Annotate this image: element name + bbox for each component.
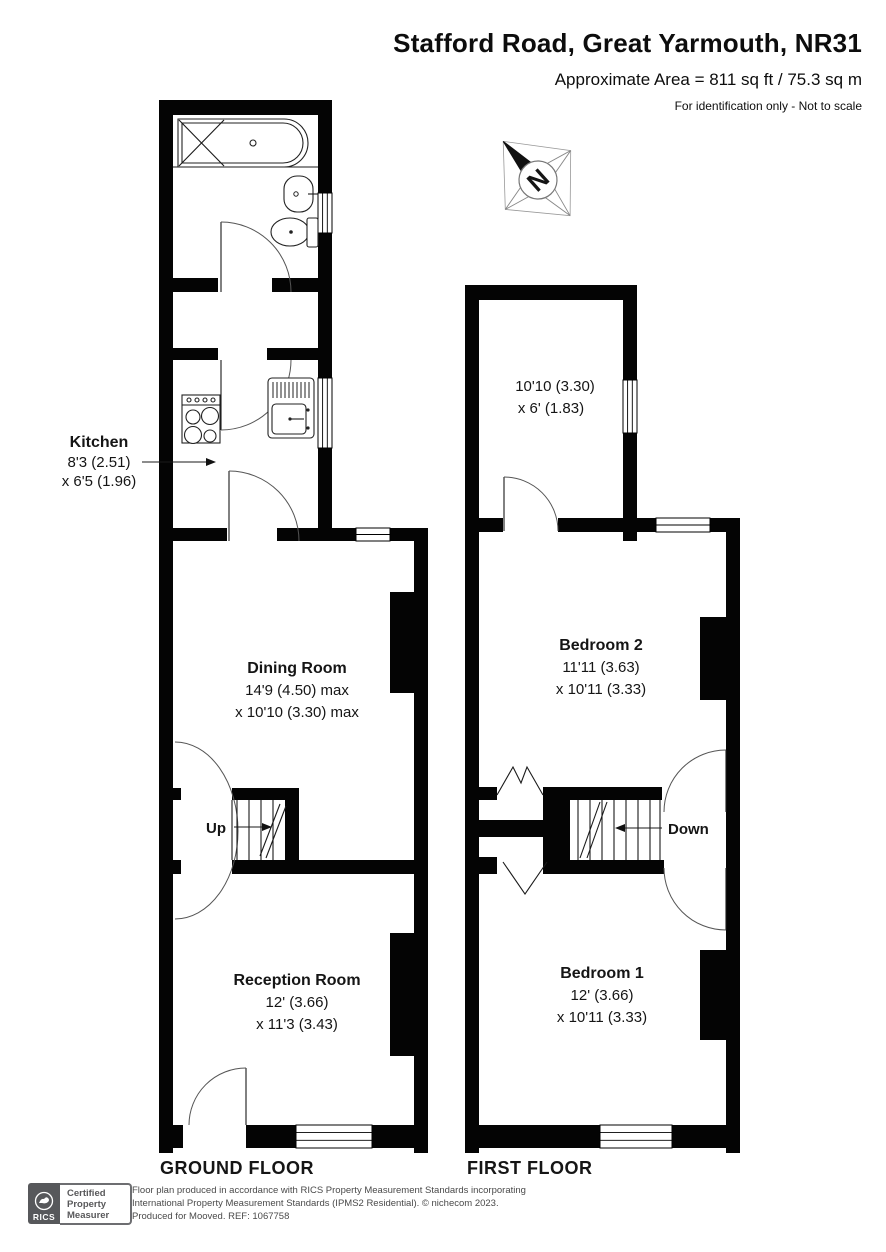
ground-floor-label: GROUND FLOOR — [160, 1158, 314, 1178]
dining-room-label: Dining Room — [247, 660, 347, 677]
bedroom1-dim1: 12' (3.66) — [571, 987, 634, 1004]
stairs-first — [578, 800, 662, 860]
reception-front-window — [296, 1125, 372, 1148]
toilet-icon — [271, 218, 318, 247]
bedroom2-door-arc — [664, 750, 726, 812]
top-room-door-arc — [504, 477, 558, 531]
bedroom2-window — [656, 518, 710, 532]
stairs-ground — [232, 800, 286, 860]
certification-badge: RICS Certified Property Measurer — [28, 1183, 132, 1225]
disclaimer-line-1: Floor plan produced in accordance with R… — [132, 1184, 526, 1197]
certified-property-measurer-badge: Certified Property Measurer — [60, 1183, 132, 1225]
bedroom1-dim2: x 10'11 (3.33) — [557, 1009, 647, 1026]
disclaimer-line-2: International Property Measurement Stand… — [132, 1197, 526, 1210]
bathtub-inner — [182, 123, 303, 163]
down-arrow-head — [615, 824, 625, 832]
bedroom1-chimney-breast — [700, 950, 740, 1040]
badge-line-1: Certified — [67, 1188, 130, 1199]
top-room-window — [623, 380, 637, 433]
disclaimer-line-3: Produced for Mooved. REF: 1067758 — [132, 1210, 526, 1223]
first-floor-windows — [600, 380, 710, 1148]
disclaimer-text: Floor plan produced in accordance with R… — [132, 1184, 526, 1223]
badge-line-3: Measurer — [67, 1210, 130, 1221]
dining-room-dim1: 14'9 (4.50) max — [245, 682, 349, 699]
bathroom-fixtures — [173, 119, 318, 247]
front-door-opening — [183, 1125, 246, 1148]
dining-room-dim2: x 10'10 (3.30) max — [235, 704, 359, 721]
kitchen-dim1: 8'3 (2.51) — [68, 454, 131, 471]
badge-line-2: Property — [67, 1199, 130, 1210]
bedroom2-dim2: x 10'11 (3.33) — [556, 681, 646, 698]
archway-upper-arc — [175, 742, 238, 831]
front-door-arc — [189, 1068, 246, 1125]
bathroom-window — [318, 193, 332, 233]
sink-icon — [268, 378, 314, 438]
top-room-dim1: 10'10 (3.30) — [515, 378, 595, 395]
reception-room-dim1: 12' (3.66) — [266, 994, 329, 1011]
kitchen-label: Kitchen — [70, 434, 129, 451]
reception-room-dim2: x 11'3 (3.43) — [256, 1016, 338, 1033]
bedroom1-door-arc — [664, 868, 726, 930]
floorplan-drawing: N — [0, 0, 886, 1252]
top-room-dim2: x 6' (1.83) — [518, 400, 584, 417]
bedroom2-label: Bedroom 2 — [559, 637, 643, 654]
up-label: Up — [206, 820, 226, 837]
bedroom1-cupboard-bifold — [503, 862, 547, 894]
kitchen-fixtures — [182, 378, 314, 444]
kitchen-arrow-head — [206, 458, 216, 466]
rics-logo: RICS — [28, 1183, 60, 1224]
floorplan-page: Stafford Road, Great Yarmouth, NR31 Appr… — [0, 0, 886, 1252]
room-labels: Kitchen 8'3 (2.51) x 6'5 (1.96) Dining R… — [62, 378, 709, 1178]
bedroom1-label: Bedroom 1 — [560, 965, 644, 982]
bedroom2-cupboard-bifold — [497, 767, 543, 795]
reception-chimney-breast — [390, 933, 428, 1056]
dining-chimney-breast — [390, 592, 428, 693]
archway-lower-arc — [175, 831, 238, 919]
down-label: Down — [668, 821, 709, 838]
first-floor-label: FIRST FLOOR — [467, 1158, 593, 1178]
dining-window — [356, 528, 390, 541]
basin-icon — [284, 176, 318, 212]
reception-room-label: Reception Room — [233, 972, 360, 989]
bedroom2-dim1: 11'11 (3.63) — [562, 659, 639, 676]
bedroom2-chimney-breast — [700, 617, 740, 700]
kitchen-window — [318, 378, 332, 448]
bedroom1-window — [600, 1125, 672, 1148]
stove-icon — [182, 395, 220, 444]
rics-crest-icon — [33, 1190, 55, 1212]
rics-wordmark: RICS — [33, 1212, 55, 1222]
compass-icon: N — [471, 112, 603, 245]
kitchen-dim2: x 6'5 (1.96) — [62, 473, 137, 490]
